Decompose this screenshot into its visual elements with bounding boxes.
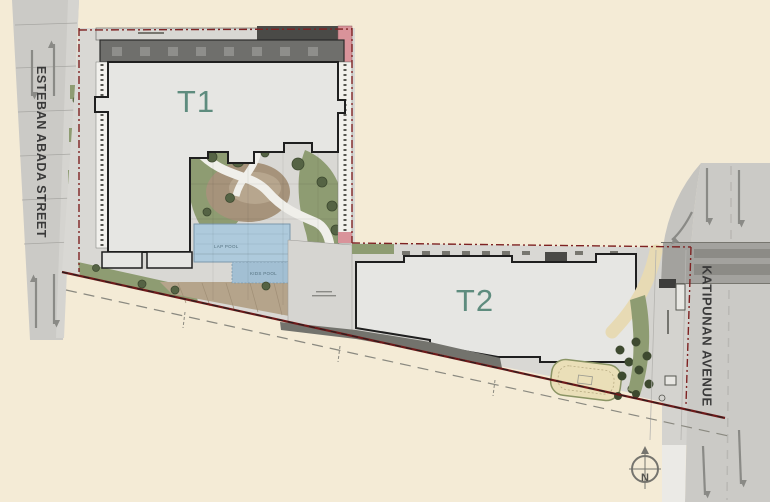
north-compass: N (629, 446, 661, 489)
site-plan: LAP POOL KIDS POOL (0, 0, 770, 502)
t2-north-planting (352, 244, 394, 254)
utility-band-text-mark (138, 32, 164, 34)
t2-entry-block (545, 252, 567, 261)
gate-booth (676, 284, 685, 310)
lap-pool (194, 224, 290, 262)
t1-annex-b (147, 252, 192, 268)
pool-deck (160, 282, 300, 318)
north-letter: N (641, 472, 649, 484)
katipunan-avenue-label: KATIPUNAN AVENUE (700, 265, 715, 407)
future-development-area (288, 240, 352, 336)
north-arrow-icon (641, 446, 649, 454)
site-plan-drawing: LAP POOL KIDS POOL (0, 0, 770, 502)
t1-annex-a (102, 252, 142, 268)
podium-strip (100, 40, 344, 62)
guard-house (659, 279, 676, 288)
lap-pool-label: LAP POOL (214, 244, 239, 249)
crossing-band (661, 242, 770, 284)
service-block (257, 26, 338, 41)
esteban-abada-street-label: ESTEBAN ABADA STREET (34, 66, 48, 238)
ramp-accent-south (338, 232, 352, 243)
sidewalk-strip (662, 445, 686, 502)
tower-t2-label: T2 (456, 283, 494, 319)
tower-t1-label: T1 (177, 84, 215, 120)
kids-pool-label: KIDS POOL (250, 271, 277, 276)
utility-box (665, 376, 676, 385)
